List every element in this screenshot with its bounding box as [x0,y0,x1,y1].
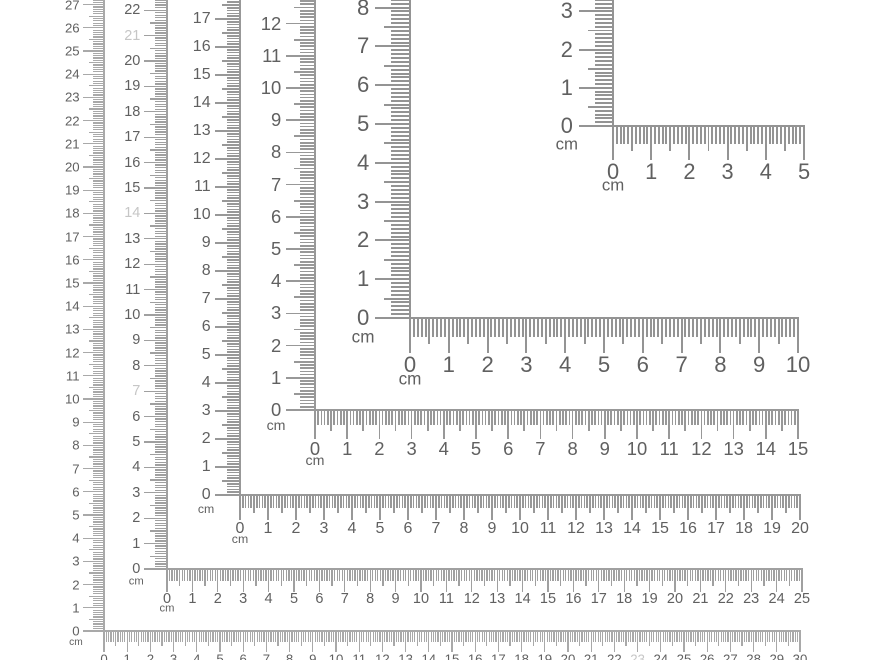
tick [83,259,104,260]
tick [93,331,104,332]
tick [256,495,257,508]
tick [93,540,104,541]
tick [784,569,785,581]
tick [471,569,472,592]
tick [155,116,167,117]
tick [93,447,104,448]
tick [559,410,561,425]
tick [558,631,559,642]
tick [684,318,686,337]
tick [93,308,104,309]
tick [427,410,429,431]
tick [693,495,694,508]
tick [385,569,386,581]
tick [227,259,240,260]
tick [727,631,728,642]
tick [93,389,104,390]
tick [391,158,410,160]
tick [438,495,439,508]
tick [595,18,613,20]
tick [572,410,574,439]
tick [659,410,661,425]
tick [757,126,759,144]
tick [257,631,258,642]
tick [93,582,104,583]
cm-number-label: 7 [70,384,140,399]
tick [530,569,531,581]
tick [412,631,413,642]
tick [357,569,358,586]
tick [433,631,434,642]
tick [222,172,240,173]
tick [150,251,167,252]
tick [340,410,342,425]
tick [286,184,315,186]
tick [337,495,338,513]
tick [494,569,495,581]
tick [227,472,240,473]
tick [533,631,534,646]
tick [624,569,625,592]
tick [179,569,180,586]
tick [639,569,640,581]
tick [537,318,539,337]
cm-number-label: 2 [147,652,154,660]
tick [533,495,534,513]
tick [89,549,104,550]
tick [730,410,732,425]
tick [155,413,167,414]
tick [763,569,764,586]
tick [215,102,240,103]
tick [300,181,315,183]
tick [758,569,759,581]
tick [662,410,664,425]
tick [83,306,104,307]
tick [227,7,240,8]
tick [635,126,637,144]
tick [777,495,778,508]
tick [83,120,104,121]
tick [131,631,132,642]
tick [643,410,645,425]
tick [529,318,531,337]
tick [155,342,167,343]
tick [227,335,240,336]
tick [391,208,410,210]
tick [227,192,240,193]
tick [347,569,348,581]
tick [340,495,341,508]
tick [300,367,315,369]
tick [150,22,167,23]
tick [227,119,240,120]
tick [502,318,504,337]
tick [155,490,167,491]
tick [290,495,291,508]
cm-number-label: 12 [211,14,281,32]
tick [536,495,537,508]
tick [690,495,691,508]
tick [333,631,334,642]
tick [595,22,613,24]
tick [227,108,240,109]
tick [215,18,240,19]
tick [755,410,757,425]
tick [227,469,240,470]
tick [150,149,167,150]
tick [243,569,244,592]
tick [360,495,361,508]
tick [93,71,104,72]
tick [309,569,310,581]
tick [384,104,410,106]
tick [312,631,313,652]
tick [475,631,476,652]
tick [739,410,741,425]
tick [155,109,167,110]
cm-number-label: 21 [584,652,599,660]
tick [427,495,428,508]
cm-number-label: 5 [10,508,80,521]
tick [637,631,638,652]
tick [227,290,240,291]
tick [595,52,613,54]
tick [606,495,607,508]
tick [300,380,315,382]
tick [215,354,240,355]
tick [351,495,352,520]
tick [356,631,357,642]
tick [737,631,738,642]
tick [587,318,589,337]
tick [300,245,315,247]
tick [93,322,104,323]
tick [215,298,240,299]
tick [391,18,410,20]
tick [268,569,269,592]
tick [603,495,604,520]
tick [227,24,240,25]
tick [746,631,747,642]
tick [361,631,362,642]
tick [446,410,448,425]
tick [672,631,673,646]
tick [227,315,240,316]
tick [746,126,748,151]
tick [365,495,366,513]
tick [178,631,179,642]
tick [155,170,167,171]
tick [300,267,315,269]
tick [93,600,104,601]
tick [93,199,104,200]
tick [604,410,606,439]
tick [155,368,167,369]
tick [726,410,728,425]
tick [93,162,104,163]
tick [238,631,239,642]
tick [778,569,779,581]
tick [300,20,315,22]
tick [570,631,571,642]
tick [684,569,685,581]
tick [189,631,190,642]
tick [685,126,687,144]
tick [300,354,315,356]
tick [572,631,573,642]
tick [616,569,617,581]
tick [83,514,104,515]
tick [155,83,167,84]
tick [750,318,752,337]
tick [89,224,104,225]
tick [83,329,104,330]
tick [155,335,167,336]
tick [767,631,768,642]
tick [155,154,167,155]
tick [300,300,315,302]
cm-number-label: 0 [70,562,140,577]
tick [93,255,104,256]
tick [353,410,355,425]
tick [150,175,167,176]
tick [155,281,167,282]
tick [444,631,445,642]
tick [688,126,690,160]
tick [93,25,104,26]
tick [155,65,167,66]
tick [778,410,780,425]
tick [626,495,627,508]
tick [528,631,529,642]
tick [250,631,251,642]
tick [318,495,319,508]
tick [222,424,240,425]
tick [646,126,648,144]
cm-number-label: 13 [595,521,613,537]
tick [93,99,104,100]
tick [93,67,104,68]
tick [668,495,669,508]
tick [556,495,557,508]
tick [93,429,104,430]
tick [144,86,167,87]
tick [696,126,698,144]
tick [93,579,104,580]
tick [410,631,411,642]
tick [362,495,363,508]
tick [384,259,410,261]
tick [491,569,492,581]
tick [642,318,644,353]
tick [155,20,167,21]
tick [300,277,315,279]
tick [93,575,104,576]
tick [93,333,104,334]
vertical-unit-label: cm [267,419,286,433]
tick [155,0,167,1]
tick [83,27,104,28]
tick [300,390,315,392]
tick [564,318,566,353]
tick [93,106,104,107]
tick [300,142,315,144]
tick [443,569,444,581]
tick [227,85,240,86]
tick [572,495,573,508]
tick [300,113,315,115]
tick [723,631,724,642]
cm-number-label: 6 [10,485,80,498]
tick [245,631,246,642]
tick [268,631,269,642]
tick [436,318,438,337]
tick [155,126,167,127]
tick [93,354,104,355]
tick [144,162,167,163]
tick [227,223,240,224]
tick [384,220,410,222]
cm-number-label: 2 [683,161,695,183]
tick [83,607,104,608]
tick [526,631,527,642]
tick [227,307,240,308]
tick [93,412,104,413]
tick [494,318,496,337]
tick [621,569,622,581]
tick [684,410,686,431]
tick [300,351,315,353]
tick [384,26,410,28]
tick [630,410,632,425]
tick [227,276,240,277]
tick [287,631,288,642]
cm-number-label: 15 [651,521,669,537]
tick [150,505,167,506]
tick [155,139,167,140]
tick [595,495,596,508]
tick [785,318,787,337]
tick [215,158,240,159]
tick [155,233,167,234]
tick [93,477,104,478]
tick [155,360,167,361]
tick [182,569,183,581]
tick [93,78,104,79]
tick [83,375,104,376]
cm-number-label: 8 [70,359,140,374]
tick [673,495,674,513]
cm-number-label: 11 [211,47,281,65]
tick [300,139,315,141]
tick [527,410,529,425]
tick [155,114,167,115]
tick [93,494,104,495]
tick [83,190,104,191]
tick [595,72,613,74]
tick [391,301,410,303]
tick [215,326,240,327]
tick [640,495,641,508]
tick [222,256,240,257]
tick [359,569,360,581]
tick [155,55,167,56]
tick [227,489,240,490]
cm-number-label: 19 [642,592,658,607]
tick [693,631,694,642]
tick [371,495,372,508]
tick [418,569,419,581]
tick [159,631,160,642]
tick [300,161,315,163]
tick [93,380,104,381]
tick [628,631,629,642]
tick [391,57,410,59]
cm-number-label: 8 [567,439,577,457]
tick [595,37,613,39]
tick [417,631,418,646]
tick [89,132,104,133]
tick [799,631,800,652]
tick [127,631,128,652]
cm-number-label: 8 [366,592,374,607]
tick [567,495,568,508]
tick [607,410,609,425]
tick [155,43,167,44]
tick [578,410,580,425]
tick [83,236,104,237]
tick [474,569,475,581]
tick [390,569,391,581]
tick [227,195,240,196]
tick [155,104,167,105]
tick [619,318,621,337]
tick [155,520,167,521]
tick [514,318,516,337]
tick [93,183,104,184]
tick [253,495,254,513]
tick [679,631,680,642]
tick [595,631,596,642]
tick [681,631,682,642]
tick [454,631,455,642]
tick [738,495,739,508]
tick [155,385,167,386]
cm-number-label: 5 [70,435,140,450]
tick [408,410,410,425]
tick [801,569,802,592]
tick [155,525,167,526]
tick [646,318,648,337]
tick [700,126,702,144]
tick [155,253,167,254]
tick [611,631,612,642]
tick [391,14,410,16]
tick [525,495,526,508]
cm-number-label: 7 [10,462,80,475]
cm-number-label: 12 [691,439,711,457]
tick [155,228,167,229]
tick [227,435,240,436]
tick [155,477,167,478]
tick [354,495,355,508]
tick [300,97,315,99]
tick [514,631,515,642]
tick [408,569,409,586]
cm-number-label: 13 [489,592,505,607]
tick [155,322,167,323]
